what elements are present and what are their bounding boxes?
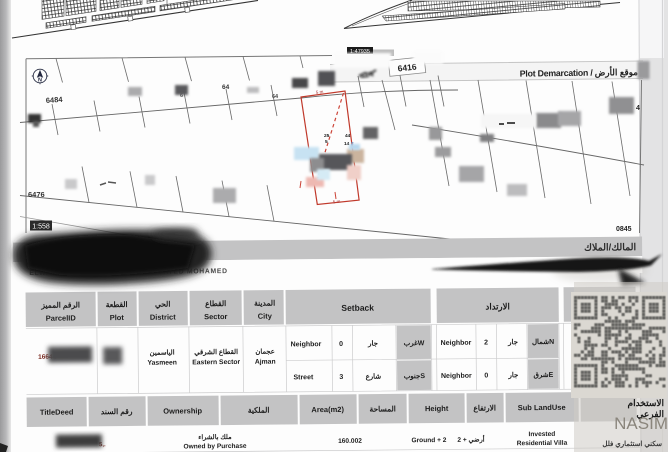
svg-text:64: 64 [272, 94, 279, 100]
svg-text:3: 3 [339, 374, 343, 381]
svg-text:Ground + 2: Ground + 2 [411, 437, 446, 444]
svg-text:سكني استثماري فلل: سكني استثماري فلل [602, 440, 662, 449]
svg-text:0845: 0845 [616, 226, 632, 233]
svg-text:Owned by Purchase: Owned by Purchase [183, 443, 246, 451]
svg-text:Residential Villa: Residential Villa [517, 440, 568, 447]
svg-text:شرقE: شرقE [533, 372, 553, 379]
svg-text:جار: جار [507, 338, 518, 346]
svg-text:5 m: 5 m [333, 199, 341, 205]
svg-text:N: N [38, 77, 42, 83]
svg-text:Yasmeen: Yasmeen [147, 360, 177, 367]
svg-text:6484: 6484 [46, 95, 64, 105]
svg-text:Area(m2): Area(m2) [311, 405, 344, 414]
svg-text:Street: Street [293, 374, 314, 381]
svg-text:Sub LandUse: Sub LandUse [518, 403, 566, 412]
svg-text:الياسمين: الياسمين [150, 349, 175, 357]
svg-text:Sector: Sector [204, 312, 228, 321]
svg-text:5 m: 5 m [316, 89, 324, 95]
svg-text:NASIM: NASIM [614, 414, 668, 433]
svg-text:Neighbor: Neighbor [441, 373, 472, 380]
svg-text:0: 0 [484, 373, 488, 380]
svg-text:Neighbor: Neighbor [291, 341, 322, 348]
svg-text:جار: جار [507, 371, 518, 379]
svg-text:الرقم المميز: الرقم المميز [40, 300, 80, 310]
svg-text:1:558: 1:558 [32, 224, 50, 231]
svg-text:شمالN: شمالN [532, 338, 554, 346]
svg-text:Invested: Invested [529, 431, 556, 438]
svg-text:القطاع: القطاع [205, 299, 226, 309]
svg-text:ملك بالشراء: ملك بالشراء [198, 433, 232, 441]
svg-text:رقم السند: رقم السند [101, 407, 133, 417]
svg-text:الحي: الحي [155, 300, 171, 310]
svg-text:14: 14 [344, 141, 350, 147]
svg-text:64: 64 [222, 84, 230, 91]
svg-text:6476: 6476 [28, 190, 45, 199]
svg-text:القطعة: القطعة [106, 300, 128, 309]
svg-text:Plot: Plot [110, 313, 125, 322]
svg-text:TitleDeed: TitleDeed [40, 408, 74, 417]
svg-text:جنوبS: جنوبS [404, 373, 426, 380]
svg-text:الارتداد: الارتداد [485, 301, 509, 312]
svg-text:2: 2 [484, 340, 488, 347]
svg-text:4: 4 [636, 105, 640, 112]
svg-text:0: 0 [339, 341, 343, 348]
svg-text:الملكية: الملكية [248, 406, 270, 415]
svg-text:المدينة: المدينة [254, 299, 275, 308]
svg-text:ParcelID: ParcelID [46, 313, 77, 322]
svg-text:Ajman: Ajman [255, 359, 276, 366]
svg-text:غربW: غربW [404, 340, 425, 347]
svg-text:جار: جار [367, 340, 378, 348]
svg-text:District: District [150, 313, 176, 322]
svg-text:الارتفاع: الارتفاع [473, 403, 496, 413]
svg-text:القطاع الشرقي: القطاع الشرقي [194, 348, 238, 357]
svg-text:25: 25 [324, 133, 330, 139]
svg-text:Ownership: Ownership [163, 406, 202, 415]
svg-text:الاستخدام: الاستخدام [628, 398, 665, 409]
svg-text:شارع: شارع [366, 373, 382, 381]
svg-text:160.002: 160.002 [338, 438, 362, 445]
svg-text:المساحة: المساحة [369, 404, 395, 413]
svg-text:44: 44 [345, 133, 351, 139]
svg-text:5: 5 [325, 139, 328, 145]
svg-text:Height: Height [425, 404, 449, 413]
svg-text:المالك/الملاك: المالك/الملاك [584, 242, 636, 254]
svg-text:Setback: Setback [341, 303, 374, 313]
svg-text:City: City [258, 312, 273, 321]
svg-text:Eastern Sector: Eastern Sector [192, 359, 240, 366]
svg-text:Neighbor: Neighbor [441, 340, 472, 347]
svg-text:عجمان: عجمان [255, 348, 275, 356]
